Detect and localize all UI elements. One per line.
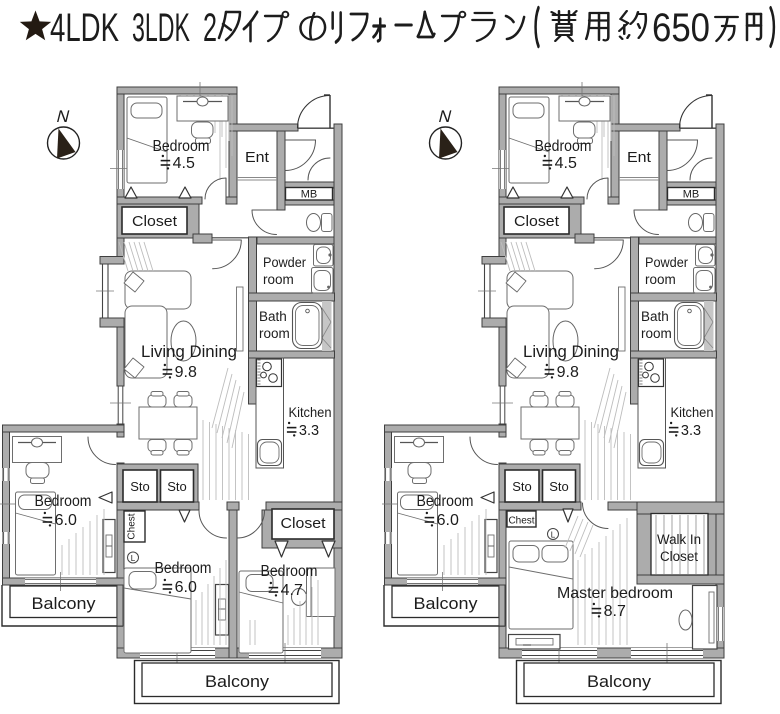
svg-text:room: room [263, 272, 294, 287]
svg-text:Living Dining: Living Dining [141, 342, 237, 361]
svg-text:Bath: Bath [641, 309, 669, 324]
svg-text:room: room [645, 272, 676, 287]
svg-text:Balcony: Balcony [32, 594, 97, 613]
svg-text:Balcony: Balcony [414, 594, 479, 613]
svg-text:9.8: 9.8 [175, 364, 197, 381]
svg-text:6.0: 6.0 [437, 512, 459, 529]
svg-text:2: 2 [203, 6, 217, 50]
svg-text:Chest: Chest [508, 516, 534, 527]
svg-text:N: N [55, 106, 72, 126]
svg-text:4.5: 4.5 [555, 155, 577, 172]
svg-text:Chest: Chest [127, 513, 138, 539]
svg-text:Powder: Powder [263, 255, 306, 270]
svg-text:Bedroom: Bedroom [155, 560, 212, 577]
svg-text:4.7: 4.7 [281, 582, 303, 599]
svg-text:Living Dining: Living Dining [523, 342, 619, 361]
svg-text:MB: MB [683, 189, 700, 201]
svg-text:Bedroom: Bedroom [261, 563, 318, 580]
svg-text:Master bedroom: Master bedroom [557, 585, 673, 602]
svg-text:Bedroom: Bedroom [535, 138, 592, 155]
svg-text:Bedroom: Bedroom [153, 138, 210, 155]
svg-text:9.8: 9.8 [557, 364, 579, 381]
svg-text:8.7: 8.7 [604, 603, 626, 620]
svg-text:Ent: Ent [627, 149, 652, 166]
svg-text:3.3: 3.3 [681, 423, 701, 439]
svg-text:Sto: Sto [167, 479, 187, 494]
svg-text:Bedroom: Bedroom [35, 493, 92, 510]
svg-text:Bedroom: Bedroom [417, 493, 474, 510]
svg-text:Closet: Closet [281, 515, 327, 532]
svg-text:Balcony: Balcony [205, 672, 270, 691]
svg-text:Sto: Sto [130, 479, 150, 494]
svg-text:650: 650 [652, 6, 710, 50]
svg-text:Powder: Powder [645, 255, 688, 270]
svg-text:Bath: Bath [259, 309, 287, 324]
svg-text:Kitchen: Kitchen [671, 404, 714, 420]
svg-text:L: L [131, 554, 136, 563]
svg-text:Balcony: Balcony [587, 672, 652, 691]
svg-text:room: room [641, 326, 672, 341]
svg-text:4LDK: 4LDK [50, 6, 119, 50]
svg-text:Kitchen: Kitchen [289, 404, 332, 420]
svg-text:Ent: Ent [245, 149, 270, 166]
svg-text:6.0: 6.0 [55, 512, 77, 529]
svg-text:Sto: Sto [549, 479, 569, 494]
svg-text:Closet: Closet [514, 213, 560, 230]
svg-text:room: room [259, 326, 290, 341]
svg-text:Sto: Sto [512, 479, 532, 494]
svg-text:Walk In: Walk In [657, 532, 701, 547]
svg-text:N: N [437, 106, 454, 126]
svg-text:L: L [551, 531, 556, 540]
svg-text:3.3: 3.3 [299, 423, 319, 439]
svg-text:6.0: 6.0 [175, 579, 197, 596]
svg-text:Closet: Closet [660, 549, 698, 564]
svg-text:3LDK: 3LDK [132, 6, 190, 50]
svg-text:4.5: 4.5 [173, 155, 195, 172]
svg-text:MB: MB [301, 189, 318, 201]
svg-text:Closet: Closet [132, 213, 178, 230]
